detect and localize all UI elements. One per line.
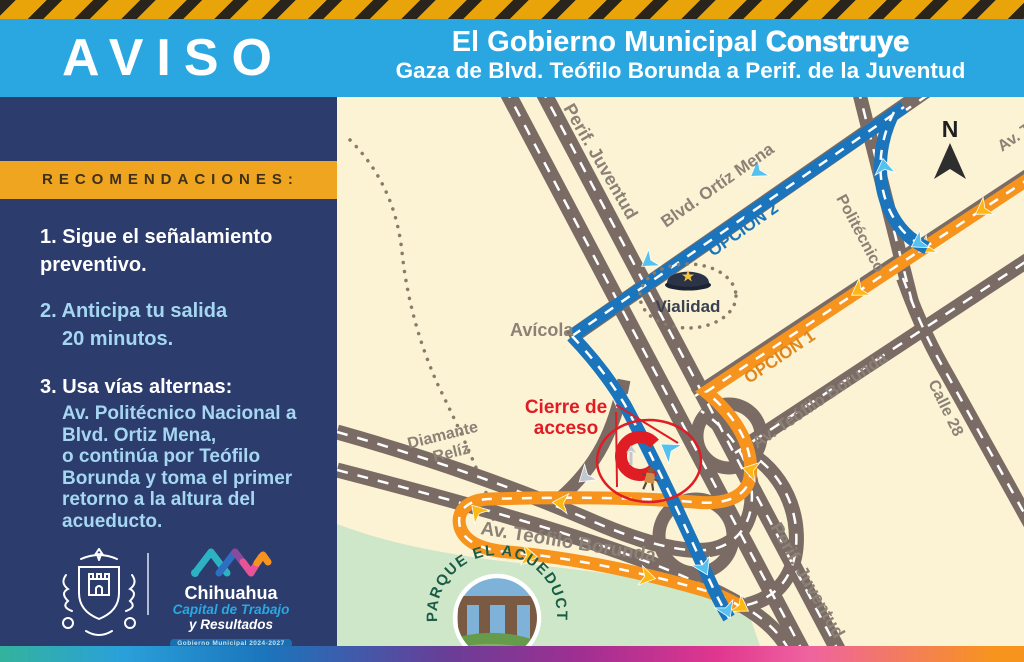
hazard-stripe xyxy=(0,0,1024,19)
logo-divider xyxy=(147,553,149,615)
aviso-poster: AVISO El Gobierno Municipal Construye Ga… xyxy=(0,0,1024,662)
city-crest-icon xyxy=(56,545,142,641)
logo-tagline-1: Capital de Trabajo xyxy=(158,602,304,617)
header-band: AVISO El Gobierno Municipal Construye Ga… xyxy=(0,19,1024,97)
recommendation-3-detail: Av. Politécnico Nacional a Blvd. Ortiz M… xyxy=(62,403,296,532)
sidebar: RECOMENDACIONES: 1. Sigue el señalamient… xyxy=(0,97,337,646)
rainbow-stripe xyxy=(0,646,1024,662)
notice-badge: AVISO xyxy=(0,19,337,97)
header-title-normal: El Gobierno Municipal xyxy=(452,26,766,58)
detour-map: Cierre de acceso Vialidad N xyxy=(337,97,1024,646)
header-titles: El Gobierno Municipal Construye Gaza de … xyxy=(337,19,1024,97)
recommendation-1: 1. Sigue el señalamiento preventivo. xyxy=(40,223,272,279)
label-avicola: Avícola xyxy=(510,320,574,340)
recommendation-2: 2. Anticipa tu salida 20 minutos. xyxy=(40,297,227,353)
vialidad-label: Vialidad xyxy=(656,297,721,316)
north-label: N xyxy=(942,116,959,142)
chihuahua-m-icon xyxy=(189,545,273,579)
closure-label-line2: acceso xyxy=(534,418,598,439)
header-subtitle: Gaza de Blvd. Teófilo Borunda a Perif. d… xyxy=(337,58,1024,84)
header-title: El Gobierno Municipal Construye xyxy=(337,26,1024,58)
map: Cierre de acceso Vialidad N xyxy=(337,97,1024,646)
logo-name: Chihuahua xyxy=(158,584,304,602)
header-title-bold: Construye xyxy=(766,26,909,58)
recommendations-label: RECOMENDACIONES: xyxy=(0,161,348,199)
chihuahua-logo: Chihuahua Capital de Trabajo y Resultado… xyxy=(158,545,304,650)
recommendations-band: RECOMENDACIONES: xyxy=(0,161,348,199)
logo-tagline-2: y Resultados xyxy=(158,617,304,632)
closure-label-line1: Cierre de xyxy=(525,397,607,418)
recommendation-3: 3. Usa vías alternas: xyxy=(40,373,232,401)
footer-logos: Chihuahua Capital de Trabajo y Resultado… xyxy=(0,543,337,643)
